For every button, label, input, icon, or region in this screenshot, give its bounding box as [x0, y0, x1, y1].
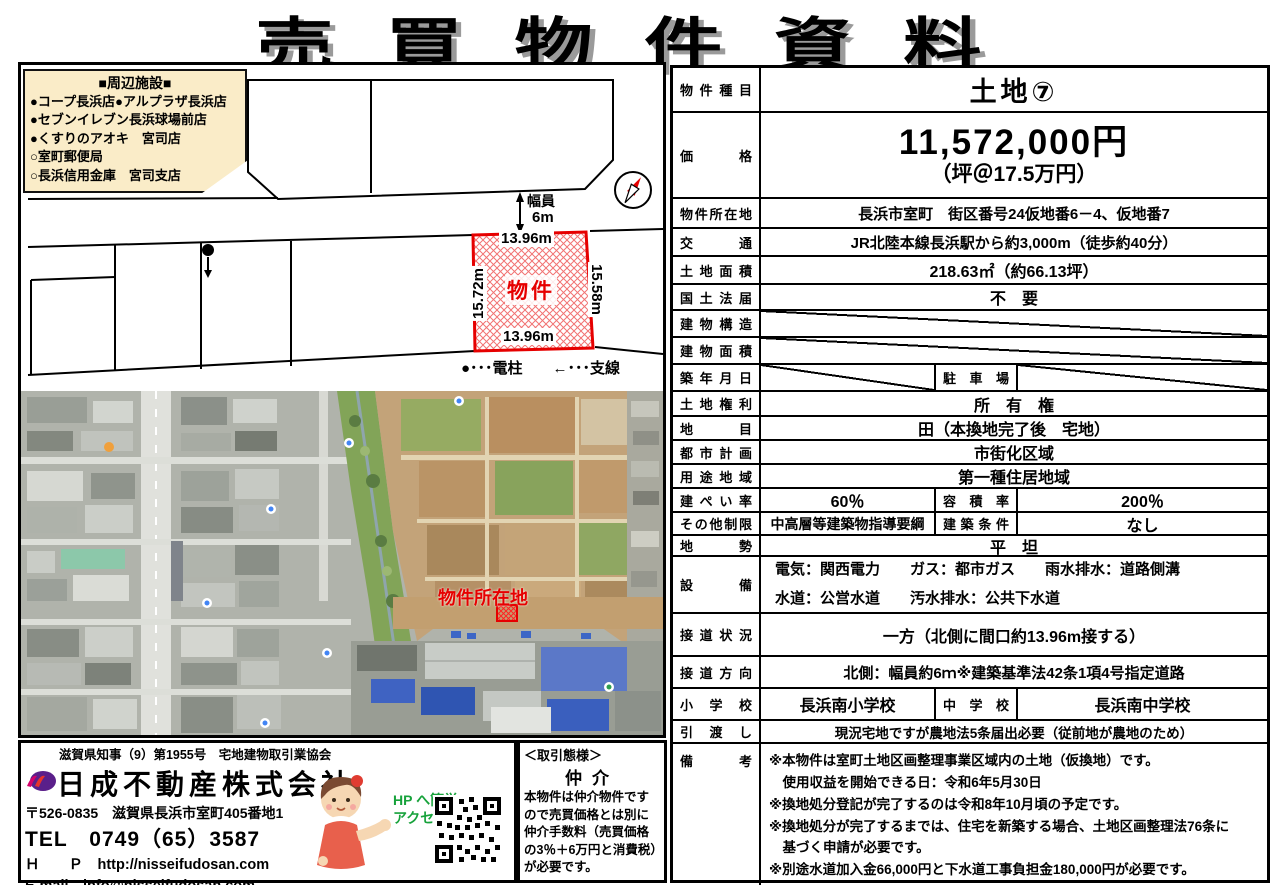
land-category-value: 田（本換地完了後 宅地）: [761, 417, 1267, 439]
row-label: 建物面積: [680, 341, 752, 360]
coverage-value: 60％: [761, 489, 936, 511]
company-logo-icon: [23, 770, 57, 796]
table-row: その他制限 中高層等建築物指導要綱 建築条件 なし: [673, 513, 1267, 536]
other-restrictions-value: 中高層等建築物指導要綱: [761, 513, 936, 534]
utilities-line1: 電気：関西電力 ガス：都市ガス 雨水排水：道路側溝: [775, 556, 1180, 585]
lower-parcel-bottom: [28, 351, 475, 375]
remarks-line: ※本物件は室町土地区画整理事業区域内の土地（仮換地）です。: [769, 750, 1159, 772]
row-label: 物件種目: [680, 80, 752, 99]
table-row: 築年月日 駐車場: [673, 365, 1267, 392]
table-row: 建物面積: [673, 338, 1267, 365]
aerial-photo-graphic: [21, 391, 663, 735]
row-label: 土地面積: [680, 261, 752, 280]
remarks-line: ※換地処分登記が完了するのは令和8年10月頃の予定です。: [769, 794, 1127, 816]
table-row: 土地面積 218.63㎡（約66.13坪）: [673, 257, 1267, 285]
table-row: 設備 電気：関西電力 ガス：都市ガス 雨水排水：道路側溝 水道：公営水道 汚水排…: [673, 557, 1267, 614]
table-row: 接道状況 一方（北側に間口約13.96m接する）: [673, 614, 1267, 657]
transaction-body: 本物件は仲介物件ですので売買価格とは別に仲介手数料（売買価格の3％＋6万円と消費…: [524, 789, 660, 877]
national-land-value: 不 要: [761, 285, 1267, 309]
plot-dim-bottom: 13.96m: [501, 328, 556, 345]
row-label: 交通: [680, 233, 752, 252]
row-label: 都市計画: [680, 443, 752, 462]
diagram-legend: ●･･･電柱 ←･･･支線: [461, 357, 620, 378]
table-row: 用途地域 第一種住居地域: [673, 465, 1267, 489]
plot-dim-left: 15.72m: [470, 266, 487, 321]
city-planning-value: 市街化区域: [761, 441, 1267, 463]
elementary-school-value: 長浜南小学校: [761, 689, 936, 719]
terrain-value: 平 坦: [761, 536, 1267, 555]
property-type-value: 土地⑦: [761, 68, 1267, 111]
compass-north-icon: [615, 172, 651, 208]
row-label: 地勢: [680, 536, 752, 555]
table-row: 地目 田（本換地完了後 宅地）: [673, 417, 1267, 441]
plot-dim-right: 15.58m: [588, 262, 605, 317]
row-sublabel: 中学校: [943, 695, 1009, 714]
company-info-box: 滋賀県知事（9）第1955号 宅地建物取引業協会 日成不動産株式会社 〒526-…: [18, 740, 517, 883]
transaction-header: ＜取引態様＞: [524, 745, 660, 764]
transaction-type: 仲介: [524, 764, 660, 789]
row-label: 地目: [680, 419, 752, 438]
qr-code-icon: [433, 795, 503, 865]
floor-ratio-value: 200％: [1018, 489, 1267, 511]
row-label: 小学校: [680, 695, 752, 714]
upper-parcel-outline: [248, 80, 613, 199]
table-row: 接道方向 北側：幅員約6ｍ※建築基準法42条1項4号指定道路: [673, 657, 1267, 689]
road-width-arrow: [516, 192, 524, 234]
property-table: 物件種目 土地⑦ 価格 11,572,000円 （坪＠17.5万円） 物件所在地…: [670, 65, 1270, 883]
aerial-photo: 物件所在地: [21, 391, 663, 735]
junior-high-value: 長浜南中学校: [1018, 689, 1267, 719]
location-value: 長浜市室町 街区番号24仮地番6－4、仮地番7: [761, 199, 1267, 227]
table-row: 地勢 平 坦: [673, 536, 1267, 557]
remarks-line: ※別途水道加入金66,000円と下水道工事負担金180,000円が必要です。: [769, 859, 1195, 881]
table-row: 建物構造: [673, 311, 1267, 338]
facilities-title: ■周辺施設■: [30, 73, 240, 93]
nearby-facilities-box: ■周辺施設■ ●コープ長浜店●アルプラザ長浜店 ●セブンイレブン長浜球場前店 ●…: [23, 69, 247, 193]
row-label: 備考: [680, 751, 752, 770]
mascot-girl-icon: [301, 769, 399, 879]
facility-item: ●くすりのアオキ 宮司店: [30, 130, 240, 148]
row-label: 接道状況: [680, 625, 752, 644]
table-row: 物件種目 土地⑦: [673, 68, 1267, 113]
building-structure-blank: [761, 311, 1267, 336]
facility-item: ●コープ長浜店●アルプラザ長浜店: [30, 93, 240, 111]
row-label: 用途地域: [680, 467, 752, 486]
table-row: 価格 11,572,000円 （坪＠17.5万円）: [673, 113, 1267, 199]
row-sublabel: 容積率: [943, 491, 1009, 510]
license-number: 滋賀県知事（9）第1955号 宅地建物取引業協会: [59, 744, 514, 763]
utilities-line2: 水道：公営水道 汚水排水：公共下水道: [775, 585, 1060, 614]
parking-blank: [1018, 365, 1267, 390]
table-row: 引渡し 現況宅地ですが農地法5条届出必要（従前地が農地のため）: [673, 721, 1267, 744]
row-label: 土地権利: [680, 394, 752, 413]
access-value: JR北陸本線長浜駅から約3,000m（徒歩約40分）: [761, 229, 1267, 255]
table-row: 国土法届 不 要: [673, 285, 1267, 311]
row-label: 接道方向: [680, 663, 752, 682]
building-area-blank: [761, 338, 1267, 363]
left-panel: ■周辺施設■ ●コープ長浜店●アルプラザ長浜店 ●セブンイレブン長浜球場前店 ●…: [18, 62, 666, 738]
row-label: 引渡し: [680, 722, 752, 741]
utility-pole-icon: [202, 244, 214, 278]
zoning-value: 第一種住居地域: [761, 465, 1267, 487]
table-row: 土地権利 所 有 権: [673, 392, 1267, 417]
row-label: 国土法届: [680, 288, 752, 307]
remarks-line: 基づく申請が必要です。: [769, 837, 930, 859]
table-row: 交通 JR北陸本線長浜駅から約3,000m（徒歩約40分）: [673, 229, 1267, 257]
row-label: 物件所在地: [680, 204, 752, 223]
row-sublabel: 駐車場: [943, 368, 1009, 387]
road-upper-edge: [28, 198, 278, 199]
transaction-type-box: ＜取引態様＞ 仲介 本物件は仲介物件ですので売買価格とは別に仲介手数料（売買価格…: [517, 740, 667, 883]
row-label: 築年月日: [680, 368, 752, 387]
facility-item: ○室町郵便局: [30, 148, 240, 166]
row-label: 設備: [680, 575, 752, 594]
row-label: 建ぺい率: [680, 491, 752, 510]
row-sublabel: 建築条件: [943, 514, 1009, 533]
road-contact-value: 一方（北側に間口約13.96m接する）: [761, 614, 1267, 655]
building-conditions-value: なし: [1018, 513, 1267, 534]
price-value: 11,572,000円: [899, 123, 1129, 163]
remarks-line: ※換地処分が完了するまでは、住宅を新築する場合、土地区画整理法76条に: [769, 816, 1229, 838]
price-per-tsubo: （坪＠17.5万円）: [931, 163, 1098, 187]
property-flyer: 売買物件資料: [0, 0, 1288, 885]
handover-value: 現況宅地ですが農地法5条届出必要（従前地が農地のため）: [761, 721, 1267, 742]
company-email[interactable]: E-mail info@nisseifudosan.com: [25, 874, 514, 885]
plot-label: 物件: [505, 275, 557, 305]
remarks-line: 使用収益を開始できる日：令和6年5月30日: [769, 772, 1042, 794]
road-direction-value: 北側：幅員約6ｍ※建築基準法42条1項4号指定道路: [761, 657, 1267, 687]
table-row: 小学校 長浜南小学校 中学校 長浜南中学校: [673, 689, 1267, 721]
facility-item: ○長浜信用金庫 宮司支店: [30, 167, 240, 185]
facility-item: ●セブンイレブン長浜球場前店: [30, 111, 240, 129]
land-area-value: 218.63㎡（約66.13坪）: [761, 257, 1267, 283]
row-label: その他制限: [680, 514, 752, 533]
road-width-label: 幅員: [527, 191, 555, 211]
table-row: 備考 ※本物件は室町土地区画整理事業区域内の土地（仮換地）です。 使用収益を開始…: [673, 744, 1267, 885]
table-row: 都市計画 市街化区域: [673, 441, 1267, 465]
road-lower-edge: [28, 235, 473, 247]
table-row: 建ぺい率 60％ 容積率 200％: [673, 489, 1267, 513]
road-width-value: 6m: [532, 209, 554, 226]
row-label: 価格: [680, 146, 752, 165]
row-label: 建物構造: [680, 314, 752, 333]
property-location-label: 物件所在地: [438, 584, 588, 610]
land-rights-value: 所 有 権: [761, 392, 1267, 415]
plot-dim-top: 13.96m: [499, 230, 554, 247]
build-date-blank: [761, 365, 936, 390]
table-row: 物件所在地 長浜市室町 街区番号24仮地番6－4、仮地番7: [673, 199, 1267, 229]
